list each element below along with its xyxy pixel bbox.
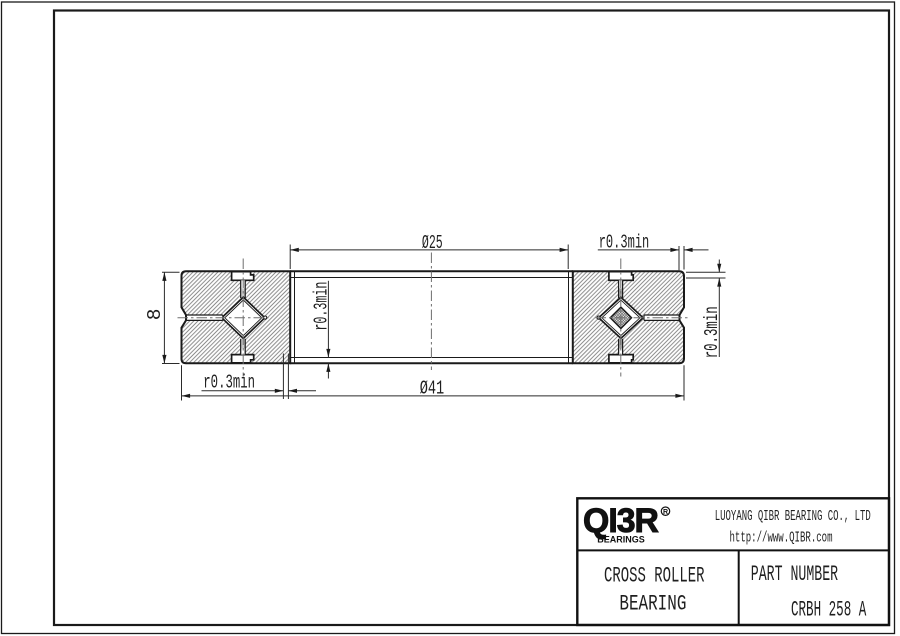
svg-text:R: R — [663, 509, 668, 516]
svg-text:http://www.QIBR.com: http://www.QIBR.com — [730, 529, 833, 547]
svg-text:BEARINGS: BEARINGS — [597, 535, 645, 546]
svg-text:Ø41: Ø41 — [420, 377, 445, 399]
svg-text:r0.3min: r0.3min — [311, 282, 333, 331]
svg-text:CROSS ROLLER: CROSS ROLLER — [604, 564, 705, 589]
svg-text:LUOYANG QIBR BEARING CO., LTD: LUOYANG QIBR BEARING CO., LTD — [715, 507, 871, 525]
svg-text:PART NUMBER: PART NUMBER — [751, 562, 838, 587]
svg-text:BEARING: BEARING — [619, 592, 686, 617]
svg-text:8: 8 — [144, 309, 166, 321]
svg-text:CRBH 258 A: CRBH 258 A — [791, 598, 867, 623]
svg-text:r0.3min: r0.3min — [203, 372, 255, 394]
svg-text:r0.3min: r0.3min — [701, 306, 723, 358]
svg-text:Ø25: Ø25 — [422, 232, 443, 254]
